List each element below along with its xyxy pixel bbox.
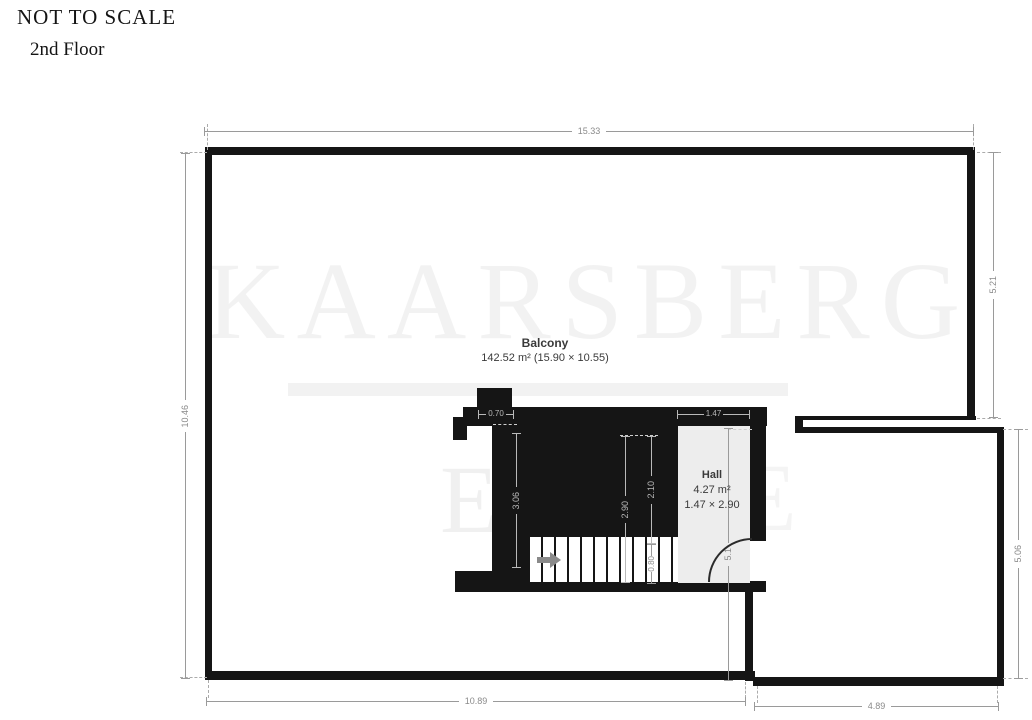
dimension-bottom-right: 4.89 [754, 701, 999, 711]
dim-tick [745, 697, 746, 706]
dim-tick [724, 680, 733, 681]
stairwell-left-stub [453, 417, 467, 440]
dimension-bottom-left: 10.89 [206, 696, 746, 706]
dim-line [993, 153, 994, 271]
not-to-scale-label: NOT TO SCALE [17, 5, 176, 30]
dim-tick [973, 127, 974, 136]
dim-tick [989, 417, 998, 418]
leader-dash [493, 424, 517, 425]
balcony-label: Balcony 142.52 m² (15.90 × 10.55) [455, 336, 635, 366]
dimension-top-value: 15.33 [572, 126, 607, 136]
dimension-bottom-right-value: 4.89 [862, 701, 892, 711]
dim-line [606, 131, 973, 132]
dim-line [651, 504, 652, 543]
dimension-right-lower: 5.06 [1013, 429, 1023, 679]
dimension-left-value: 10.46 [180, 400, 190, 433]
dim-tick [749, 410, 750, 419]
dimension-stair-lower: 0.80 [646, 544, 656, 584]
dim-line [755, 706, 862, 707]
dimension-right-upper-value: 5.21 [988, 271, 998, 299]
dim-tick [647, 583, 656, 584]
stairwell-top-protrusion [477, 388, 512, 408]
wall-right-upper [967, 147, 975, 420]
stair-direction-arrow-icon [537, 552, 563, 568]
wall-below-hall [745, 583, 753, 681]
wall-bottom-main [205, 671, 755, 680]
wall-top [205, 147, 975, 155]
dim-tick [1014, 678, 1023, 679]
dim-line [506, 414, 513, 415]
leader-dash [977, 418, 1001, 419]
dimension-hall-vertical-value: 5.1 [723, 543, 733, 566]
wall-left [205, 147, 212, 680]
dimension-top: 15.33 [204, 126, 974, 136]
dim-line [651, 572, 652, 583]
dim-line [493, 701, 745, 702]
floor-title: 2nd Floor [30, 39, 104, 61]
dim-line [728, 566, 729, 680]
arrow-shaft [537, 557, 550, 563]
dimension-landing: 0.70 [478, 409, 514, 419]
hall-dims: 1.47 × 2.90 [662, 498, 762, 513]
wall-jog-bottom [795, 427, 1004, 433]
dim-line [185, 432, 186, 678]
arrow-head [550, 552, 561, 568]
dim-tick [998, 702, 999, 711]
dim-tick [621, 582, 630, 583]
dim-line [516, 434, 517, 487]
watermark-fragment-left: E [440, 452, 499, 548]
dimension-stair-upper-value: 2.10 [646, 476, 656, 504]
dimension-left: 10.46 [180, 153, 190, 679]
dim-line [1018, 430, 1019, 540]
dim-line [651, 545, 652, 556]
dim-line [678, 414, 704, 415]
dim-line [516, 514, 517, 567]
dim-line [651, 437, 652, 476]
dimension-hall-width-value: 1.47 [704, 409, 724, 419]
dimension-stair-depth-value: 3.06 [511, 487, 521, 515]
wall-jog-top [796, 416, 976, 420]
wall-right-lower [997, 427, 1004, 686]
dimension-hall-width: 1.47 [677, 409, 750, 419]
hall-label: Hall 4.27 m² 1.47 × 2.90 [662, 468, 762, 513]
dim-line [993, 299, 994, 417]
floor-plan-canvas: NOT TO SCALE 2nd Floor KAARSBERG E E [0, 0, 1032, 720]
dimension-stair-total: 2.90 [620, 436, 630, 583]
dim-tick [512, 567, 521, 568]
dim-tick [513, 410, 514, 419]
dimension-stair-lower-value: 0.80 [645, 556, 658, 572]
dimension-stair-upper: 2.10 [646, 436, 656, 544]
dim-line [625, 437, 626, 496]
dimension-right-upper: 5.21 [988, 152, 998, 418]
dim-line [207, 701, 459, 702]
hall-name: Hall [662, 468, 762, 483]
dim-line [479, 414, 486, 415]
dim-line [723, 414, 749, 415]
dimension-stair-depth: 3.06 [511, 433, 521, 568]
balcony-area: 142.52 m² (15.90 × 10.55) [455, 351, 635, 366]
dimension-hall-vertical: 5.1 [723, 428, 733, 681]
dimension-stair-total-value: 2.90 [620, 496, 630, 524]
dim-line [205, 131, 572, 132]
hall-area: 4.27 m² [662, 483, 762, 498]
wall-bottom-right [753, 677, 1004, 686]
dim-tick [181, 678, 190, 679]
balcony-name: Balcony [455, 336, 635, 351]
dimension-landing-value: 0.70 [486, 409, 506, 419]
dim-line [891, 706, 998, 707]
watermark-underline-band [288, 383, 788, 396]
dim-line [1018, 568, 1019, 678]
dim-line [185, 154, 186, 400]
dimension-bottom-left-value: 10.89 [459, 696, 494, 706]
dimension-right-lower-value: 5.06 [1013, 540, 1023, 568]
dim-line [625, 523, 626, 582]
